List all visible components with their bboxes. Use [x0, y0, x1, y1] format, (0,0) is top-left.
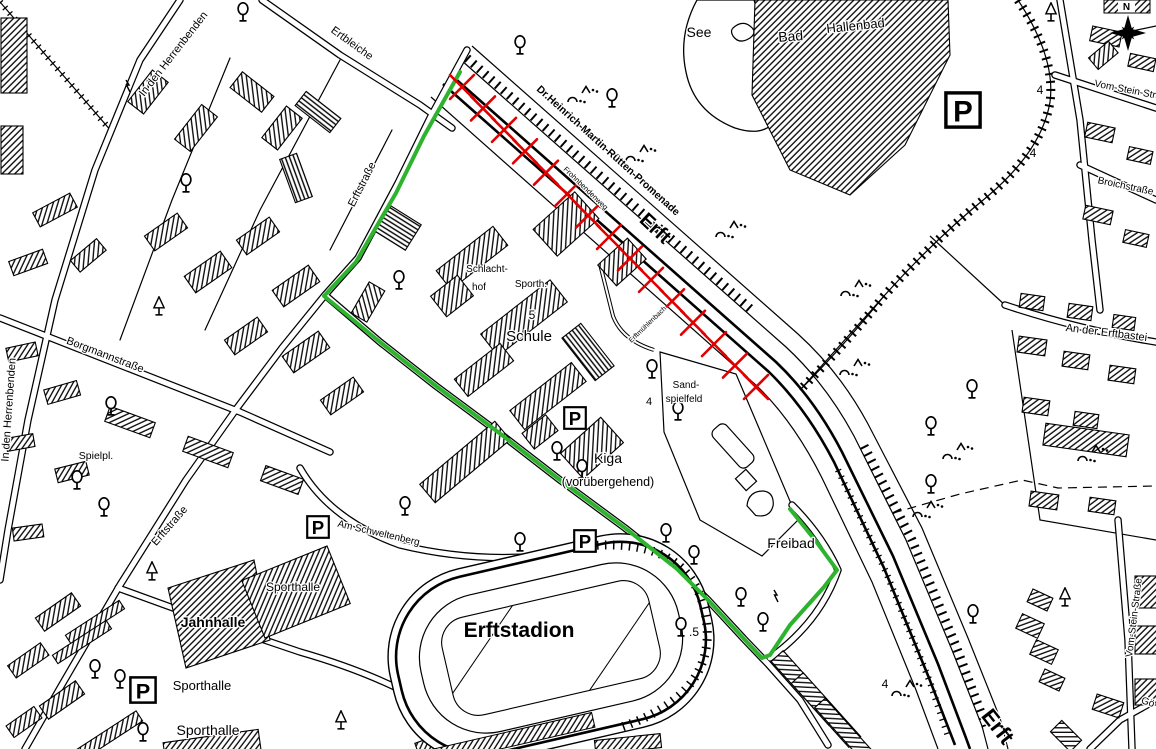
building-footprint — [1043, 423, 1129, 456]
tree-icon — [607, 89, 617, 107]
tree-icon — [515, 36, 525, 54]
building-footprint — [1062, 351, 1090, 369]
lightning-icon — [774, 590, 778, 602]
building-footprint — [224, 317, 267, 355]
label-sporthalle: Sporthalle — [176, 722, 239, 738]
label-number: 4 — [882, 677, 889, 691]
tree-icon — [90, 660, 100, 678]
monument-icon — [716, 222, 746, 239]
building-footprint — [280, 153, 313, 202]
building-footprint — [1128, 53, 1156, 71]
label-number: .5 — [689, 625, 699, 639]
tree-icon — [181, 174, 191, 192]
label-number: 4 — [1030, 146, 1037, 160]
label-freibad: Freibad — [767, 535, 814, 551]
tree-icon — [926, 475, 936, 493]
monument-icon — [841, 281, 871, 298]
monument-icon — [913, 502, 943, 519]
building-footprint — [420, 421, 510, 502]
building-footprint — [1029, 491, 1059, 510]
monument-icon — [626, 146, 656, 163]
building-footprint — [1073, 411, 1099, 428]
parking-icon — [307, 516, 329, 538]
building-footprint — [1039, 669, 1065, 691]
building-footprint — [1030, 640, 1059, 665]
label-bad: Bad — [778, 27, 804, 45]
label-stadium: Erftstadion — [464, 619, 575, 642]
parcel-line — [930, 236, 1006, 306]
building-footprint — [183, 436, 234, 467]
building-footprint — [1108, 365, 1136, 383]
label-sporthalle: Sporthalle — [173, 678, 232, 693]
building-footprint — [230, 72, 274, 112]
label-street: Borgmannstraße — [65, 335, 146, 376]
label-street: Erftstraße — [346, 160, 379, 208]
city-map-canvas: P — [0, 0, 1156, 749]
building-footprint — [105, 406, 156, 437]
building-footprint — [1050, 720, 1081, 749]
building-footprint — [351, 282, 385, 322]
tree-icon — [926, 417, 936, 435]
tree-icon — [138, 723, 148, 741]
tree-icon — [515, 533, 525, 551]
building-footprint — [35, 593, 80, 631]
label-schlachthof: Schlacht- — [466, 264, 508, 275]
label-playground: Spielpl. — [79, 450, 113, 462]
tree-icon — [689, 546, 699, 564]
building-footprint — [1016, 614, 1045, 639]
map-viewport[interactable]: P — [0, 0, 1156, 749]
label-schlachthof: hof — [472, 282, 486, 293]
label-lake: See — [687, 24, 712, 40]
building-footprint — [272, 265, 320, 307]
parcel-line — [800, 296, 884, 390]
building-footprint — [8, 643, 49, 678]
building-footprint — [320, 377, 363, 415]
label-sandpit: spielfeld — [666, 394, 703, 405]
fir-tree-icon — [1046, 3, 1056, 21]
monument-icon — [943, 444, 973, 461]
building-footprint — [533, 192, 599, 256]
label-street: Broichstraße — [1097, 175, 1155, 198]
label-street: Ertbleiche — [328, 24, 375, 62]
building-footprint — [1017, 336, 1047, 356]
label-number: 5 — [529, 308, 536, 322]
label-street: Am Schweltenberg — [336, 519, 420, 549]
tree-icon — [552, 442, 562, 460]
tree-icon — [115, 670, 125, 688]
building-footprint — [454, 343, 513, 396]
building-footprint — [12, 524, 44, 541]
tree-icon — [72, 471, 82, 489]
building-footprint — [9, 249, 48, 275]
north-letter: N — [1123, 2, 1130, 13]
tree-icon — [968, 605, 978, 623]
parking-icon — [564, 407, 586, 429]
parking-icon — [130, 677, 155, 703]
tree-icon — [394, 271, 404, 289]
building-footprint — [144, 213, 187, 251]
monument-icon — [568, 87, 598, 104]
label-sandpit: Sand- — [673, 380, 700, 391]
parcel-line — [205, 60, 340, 330]
label-promenade: Dr.Heinrich-Martin-Rütten-Promenade — [534, 83, 682, 218]
tree-icon — [647, 360, 657, 378]
tree-icon — [967, 380, 977, 398]
fir-tree-icon — [147, 562, 157, 580]
parking-icon — [574, 530, 596, 552]
building-footprint — [236, 217, 279, 255]
tree-icon — [400, 497, 410, 515]
building-footprint — [1019, 293, 1045, 310]
parking-icon — [946, 93, 980, 128]
tree-icon — [661, 524, 671, 542]
fir-tree-icon — [1060, 588, 1070, 606]
building-footprint — [1127, 147, 1153, 165]
building-footprint — [1092, 694, 1124, 718]
label-number: 4 — [646, 396, 652, 408]
building-footprint — [1067, 303, 1093, 320]
tree-icon — [238, 3, 248, 21]
freibad-pools — [710, 421, 780, 520]
bolt-icons-layer — [126, 80, 778, 602]
building-footprint — [1085, 122, 1116, 142]
building-footprint — [436, 226, 508, 289]
building-footprint — [1123, 230, 1149, 248]
tree-icon — [736, 588, 746, 606]
label-street: An der Erftbastei — [1065, 322, 1148, 344]
label-sporthalle-abbr: Sporth. — [515, 279, 547, 290]
building-footprint — [44, 381, 81, 405]
building-footprint — [295, 91, 341, 132]
label-channel: Erftmühlenbach — [628, 305, 668, 344]
label-sporthalle: Sporthalle — [266, 580, 320, 594]
fir-tree-icon — [154, 297, 164, 315]
building-footprint — [1022, 397, 1050, 415]
building-footprint — [77, 711, 142, 749]
label-kiga-sub: (vorübergehend) — [562, 475, 654, 489]
building-footprint — [175, 105, 218, 152]
monument-icon — [840, 360, 870, 377]
label-kiga: Kiga — [594, 450, 622, 466]
building-footprint — [33, 193, 78, 227]
label-school: Schule — [506, 328, 552, 345]
fir-tree-icon — [336, 711, 346, 729]
building-footprint — [1, 126, 23, 174]
building-footprint — [431, 275, 474, 316]
road — [0, 318, 330, 452]
tree-icon — [758, 613, 768, 631]
building-footprint — [1088, 497, 1116, 514]
label-river: Erft — [976, 704, 1019, 749]
label-jahnhalle: Jahnhalle — [181, 614, 246, 630]
label-number: 4 — [1037, 83, 1044, 97]
building-footprint — [1, 18, 27, 93]
building-footprint — [1027, 589, 1053, 611]
tree-icon — [99, 498, 109, 516]
